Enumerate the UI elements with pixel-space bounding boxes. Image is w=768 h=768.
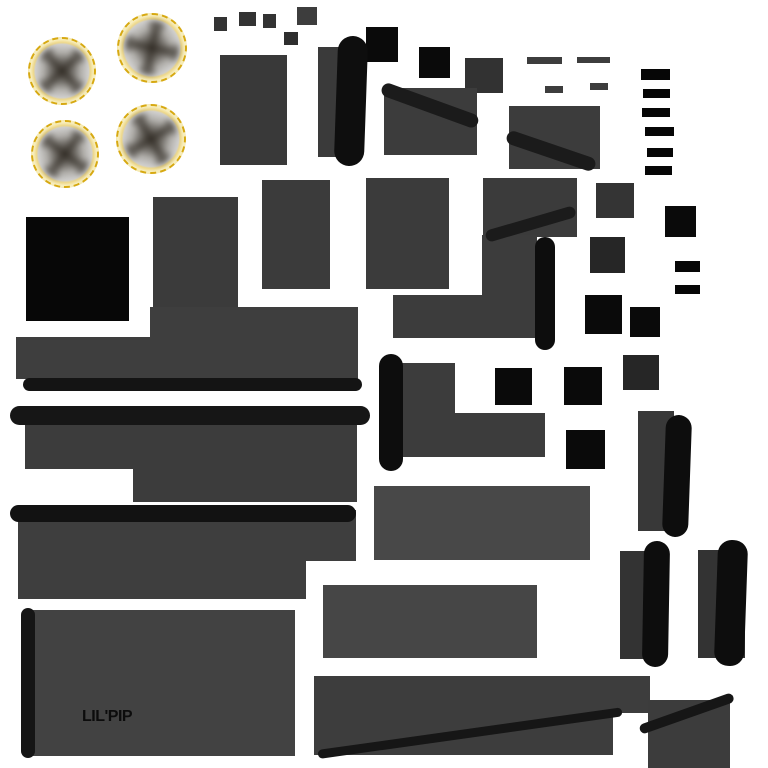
strap-pill-1 xyxy=(23,378,362,391)
texture-atlas: LIL'PIP xyxy=(0,0,768,768)
black-square-1 xyxy=(366,27,398,62)
black-square-6 xyxy=(630,307,660,337)
strap-r-band xyxy=(714,540,748,667)
panel-j2 xyxy=(18,560,306,599)
black-square-2 xyxy=(419,47,450,78)
dash-4 xyxy=(590,83,608,90)
black-square-3 xyxy=(665,206,696,237)
strap-pill-3 xyxy=(10,505,356,522)
panel-g1 xyxy=(150,307,358,338)
black-square-4 xyxy=(26,217,129,321)
wheel-bottom-left xyxy=(31,120,99,188)
panel-e1 xyxy=(262,180,330,289)
panel-a xyxy=(220,55,287,165)
black-square-8 xyxy=(564,367,602,405)
black-dash-8 xyxy=(675,285,700,294)
panel-n xyxy=(323,585,537,658)
dark-square-4 xyxy=(623,355,659,390)
wheel-top-right-spokes xyxy=(125,21,179,75)
chip-3 xyxy=(263,14,276,28)
panel-t xyxy=(153,197,238,307)
panel-u2 xyxy=(393,295,482,338)
panel-k xyxy=(23,610,295,756)
wheel-bottom-right xyxy=(116,104,186,174)
panel-x2 xyxy=(455,413,545,457)
panel-e2 xyxy=(366,178,449,289)
wheel-bottom-right-spokes xyxy=(124,112,178,166)
chip-2 xyxy=(239,12,256,26)
strap-pill-w xyxy=(379,354,403,471)
dark-square-3 xyxy=(590,237,625,273)
dash-3 xyxy=(545,86,563,93)
strap-pill-v xyxy=(535,237,555,350)
chip-5 xyxy=(297,7,317,25)
black-square-9 xyxy=(566,430,605,469)
wheel-top-left xyxy=(28,37,96,105)
chip-4 xyxy=(284,32,298,45)
strap-q-band xyxy=(642,541,670,667)
panel-h2 xyxy=(133,468,357,502)
strap-pill-k xyxy=(21,608,35,758)
panel-o1 xyxy=(314,676,650,713)
dash-2 xyxy=(577,57,610,63)
strap-pill-2 xyxy=(10,406,370,425)
chip-1 xyxy=(214,17,227,31)
dark-square-2 xyxy=(596,183,634,218)
black-square-7 xyxy=(495,368,532,405)
wheel-bottom-left-spokes xyxy=(39,128,92,181)
black-dash-1 xyxy=(641,69,670,80)
strap-p-band xyxy=(662,415,692,538)
black-square-5 xyxy=(585,295,622,334)
atlas-label: LIL'PIP xyxy=(82,708,132,726)
black-dash-6 xyxy=(645,166,672,175)
black-dash-3 xyxy=(642,108,670,117)
wheel-top-left-spokes xyxy=(36,45,89,98)
black-dash-5 xyxy=(647,148,673,157)
wheel-top-right xyxy=(117,13,187,83)
black-dash-4 xyxy=(645,127,674,136)
panel-u1 xyxy=(482,235,537,338)
strap-band-b xyxy=(334,36,369,167)
panel-h1 xyxy=(25,425,357,469)
dash-1 xyxy=(527,57,562,64)
panel-g2 xyxy=(16,337,358,379)
panel-l xyxy=(374,486,590,560)
black-dash-2 xyxy=(643,89,670,98)
black-dash-7 xyxy=(675,261,700,272)
